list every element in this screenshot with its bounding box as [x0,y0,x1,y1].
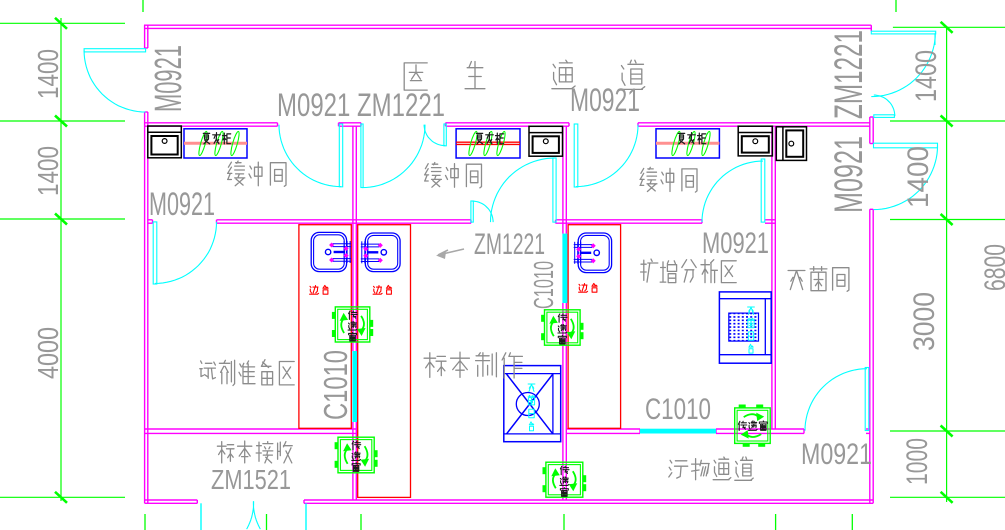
svg-text:ZM1221: ZM1221 [474,228,545,261]
svg-text:1400: 1400 [33,49,65,99]
svg-text:C1010: C1010 [317,350,354,420]
svg-text:ZM1521: ZM1521 [211,464,291,495]
svg-text:4000: 4000 [33,327,65,379]
svg-text:M0921: M0921 [570,82,640,118]
svg-text:6800: 6800 [979,244,1005,291]
svg-text:ZM1221: ZM1221 [827,30,871,119]
svg-text:1400: 1400 [902,146,935,208]
svg-text:C1010: C1010 [645,393,711,426]
svg-text:M0921: M0921 [702,227,769,260]
svg-text:C1010: C1010 [528,261,559,309]
svg-text:M0921: M0921 [827,136,871,213]
svg-text:3000: 3000 [908,292,941,351]
svg-text:M0921: M0921 [801,438,872,471]
svg-text:M0921: M0921 [148,45,190,112]
svg-text:1000: 1000 [901,438,934,485]
svg-text:M0921 ZM1221: M0921 ZM1221 [277,87,445,123]
svg-text:M0921: M0921 [149,186,215,222]
svg-text:1400: 1400 [910,50,943,102]
svg-text:1400: 1400 [33,146,65,196]
